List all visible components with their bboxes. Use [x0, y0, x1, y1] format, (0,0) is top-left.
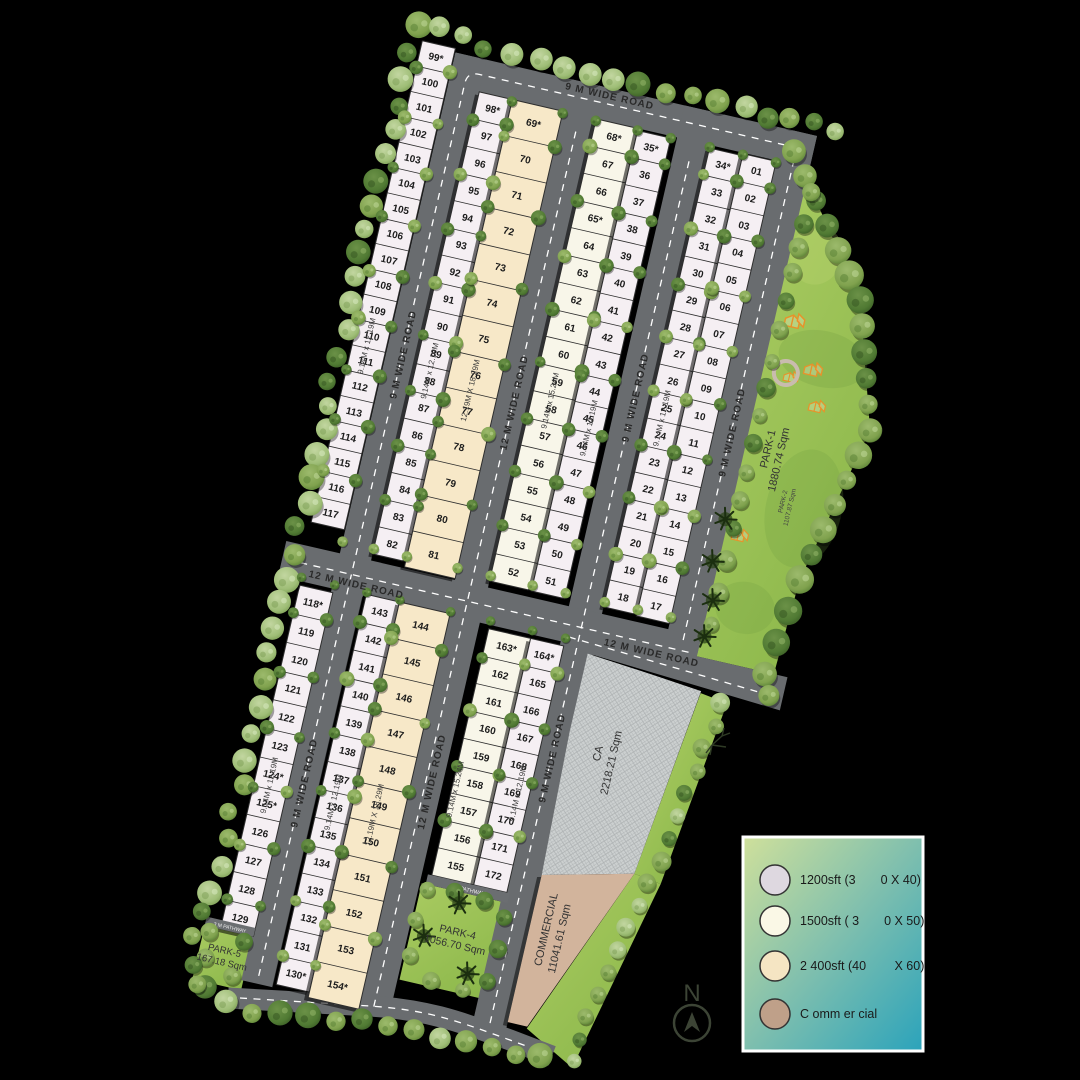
svg-text:1200sft (3 0 X 40): 1200sft (3 0 X 40)	[800, 873, 921, 887]
svg-text:2 400sft (40 X 60): 2 400sft (40 X 60)	[800, 959, 924, 973]
svg-text:N: N	[683, 980, 700, 1007]
svg-text:1500sft ( 3 0 X 50): 1500sft ( 3 0 X 50)	[800, 914, 924, 928]
svg-text:C omm er cial: C omm er cial	[800, 1007, 877, 1021]
